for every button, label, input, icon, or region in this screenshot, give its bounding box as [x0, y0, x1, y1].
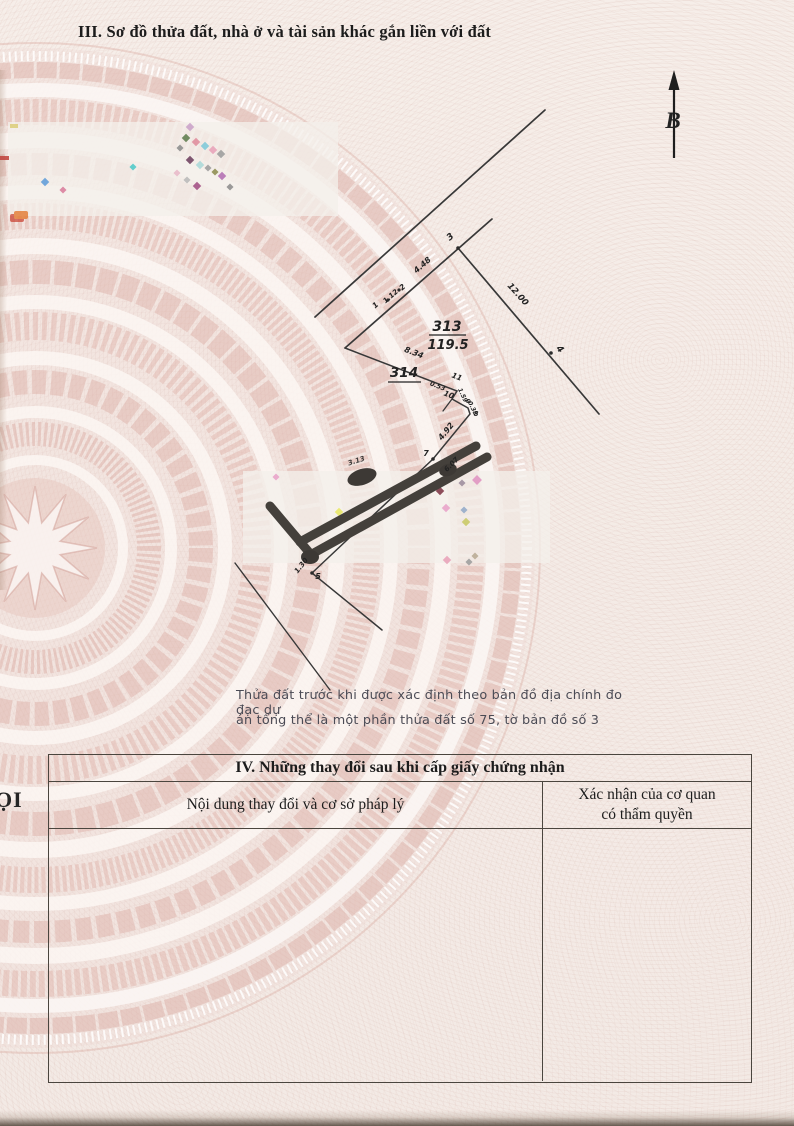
point-1: 1 [370, 300, 380, 310]
col2-cell [543, 829, 751, 1081]
col1-header: Nội dung thay đổi và cơ sở pháp lý [49, 782, 543, 828]
left-edge-clipped-text: ỌI [0, 787, 23, 813]
north-arrow-head [669, 70, 680, 90]
section-4-table: IV. Những thay đổi sau khi cấp giấy chứn… [48, 754, 752, 1083]
dim-edge-8-7: 4.92 [436, 421, 456, 443]
north-arrow-label: B [664, 108, 680, 133]
dim-edge-3-4: 12.00 [505, 281, 530, 308]
col2-header-line1: Xác nhận của cơ quan [578, 785, 715, 805]
land-certificate-page: III. Sơ đồ thửa đất, nhà ở và tài sản kh… [0, 0, 794, 1126]
table-empty-row [49, 829, 751, 1081]
parcel-313-number: 313 [432, 319, 461, 335]
table-header-row: Nội dung thay đổi và cơ sở pháp lý Xác n… [49, 782, 751, 829]
dim-road: 3.13 [347, 455, 366, 468]
point-8: 8 [474, 410, 479, 418]
survey-note-line2: án tổng thể là một phần thửa đất số 75, … [236, 713, 626, 728]
parcel-314-number: 314 [390, 365, 418, 381]
boundary-lines [235, 110, 599, 690]
point-7: 7 [423, 449, 429, 458]
point-5: 5 [315, 572, 321, 581]
col2-header-line2: có thẩm quyền [601, 805, 692, 825]
col1-cell [49, 829, 543, 1081]
north-arrow: B [664, 70, 680, 158]
section-4-title: IV. Những thay đổi sau khi cấp giấy chứn… [49, 755, 751, 782]
photo-bottom-edge [0, 1110, 794, 1126]
col2-header: Xác nhận của cơ quan có thẩm quyền [543, 782, 751, 828]
point-3: 3 [445, 232, 456, 244]
dim-edge-boundary: 8.34 [403, 345, 425, 361]
point-11: 11 [450, 371, 463, 383]
parcel-313-area: 119.5 [427, 338, 468, 353]
point-4: 4 [553, 343, 565, 355]
